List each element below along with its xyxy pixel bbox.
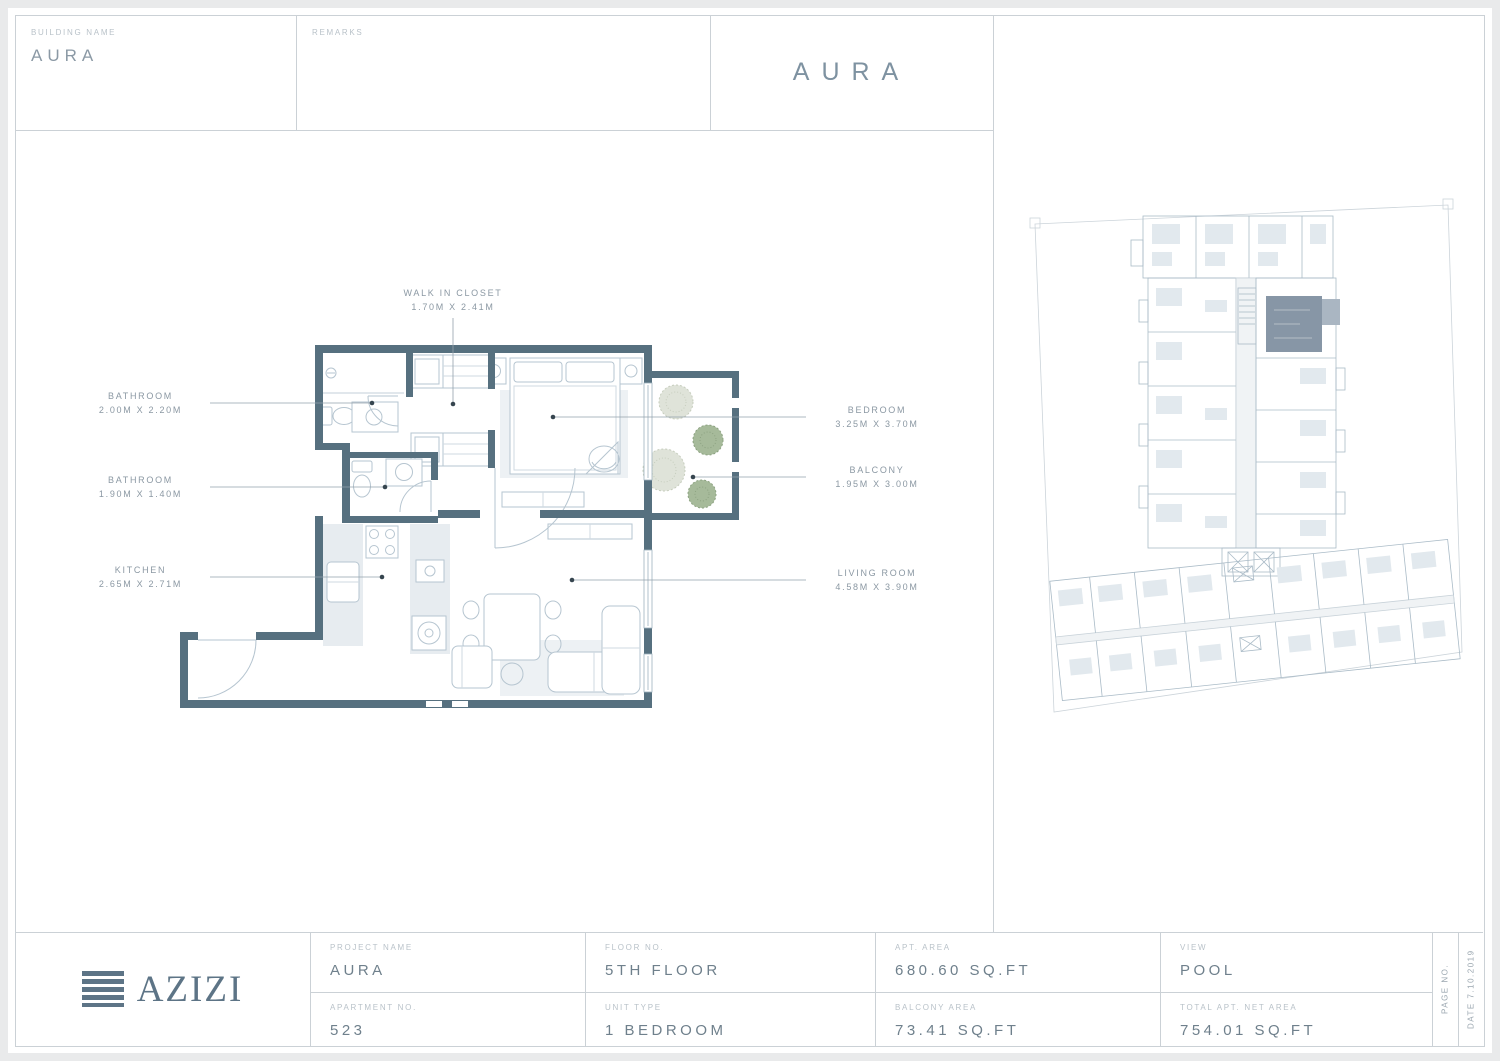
- remarks-cell: REMARKS: [296, 15, 710, 130]
- apartment-floor-plan: [180, 318, 806, 708]
- building-name-value: AURA: [31, 46, 296, 66]
- page-title: AURA: [793, 58, 910, 87]
- table-cell-total-net-area: TOTAL APT. NET AREA 754.01 SQ.FT: [1160, 992, 1432, 1046]
- table-cell-unit-type: UNIT TYPE 1 BEDROOM: [585, 992, 875, 1046]
- room-label-balcony: BALCONY 1.95M X 3.00M: [812, 463, 942, 491]
- table-cell-balcony-area: BALCONY AREA 73.41 SQ.FT: [875, 992, 1160, 1046]
- room-label-bathroom-1: BATHROOM 2.00M X 2.20M: [73, 389, 208, 417]
- title-cell: AURA: [710, 15, 993, 130]
- table-cell-floor-no: FLOOR NO. 5TH FLOOR: [585, 932, 875, 992]
- azizi-logo: AZIZI: [15, 932, 310, 1046]
- azizi-logo-text: AZIZI: [137, 968, 244, 1011]
- remarks-label: REMARKS: [312, 28, 710, 37]
- azizi-logo-bars-icon: [82, 970, 126, 1008]
- table-cell-view: VIEW POOL: [1160, 932, 1432, 992]
- brochure-page: BUILDING NAME AURA REMARKS AURA WALK IN …: [0, 0, 1500, 1061]
- table-cell-apartment-no: APARTMENT NO. 523: [310, 992, 585, 1046]
- highlighted-unit: [1266, 296, 1340, 352]
- floor-plan-artwork: [0, 0, 1500, 1061]
- room-label-bathroom-2: BATHROOM 1.90M X 1.40M: [73, 473, 208, 501]
- room-label-walk-in-closet: WALK IN CLOSET 1.70M X 2.41M: [378, 286, 528, 314]
- date-strip: DATE 7.10.2019: [1458, 932, 1484, 1046]
- key-plan-bottom-wing: [1050, 539, 1460, 700]
- building-name-label: BUILDING NAME: [31, 28, 296, 37]
- page-no-strip: PAGE NO.: [1432, 932, 1458, 1046]
- table-cell-project-name: PROJECT NAME AURA: [310, 932, 585, 992]
- table-cell-apt-area: APT. AREA 680.60 SQ.FT: [875, 932, 1160, 992]
- key-plan-vertical-wing: [1131, 216, 1345, 548]
- room-label-kitchen: KITCHEN 2.65M X 2.71M: [73, 563, 208, 591]
- room-label-living-room: LIVING ROOM 4.58M X 3.90M: [812, 566, 942, 594]
- balcony-plants: [643, 385, 723, 508]
- room-label-bedroom: BEDROOM 3.25M X 3.70M: [812, 403, 942, 431]
- building-name-cell: BUILDING NAME AURA: [15, 15, 296, 130]
- key-plan: [1030, 199, 1462, 712]
